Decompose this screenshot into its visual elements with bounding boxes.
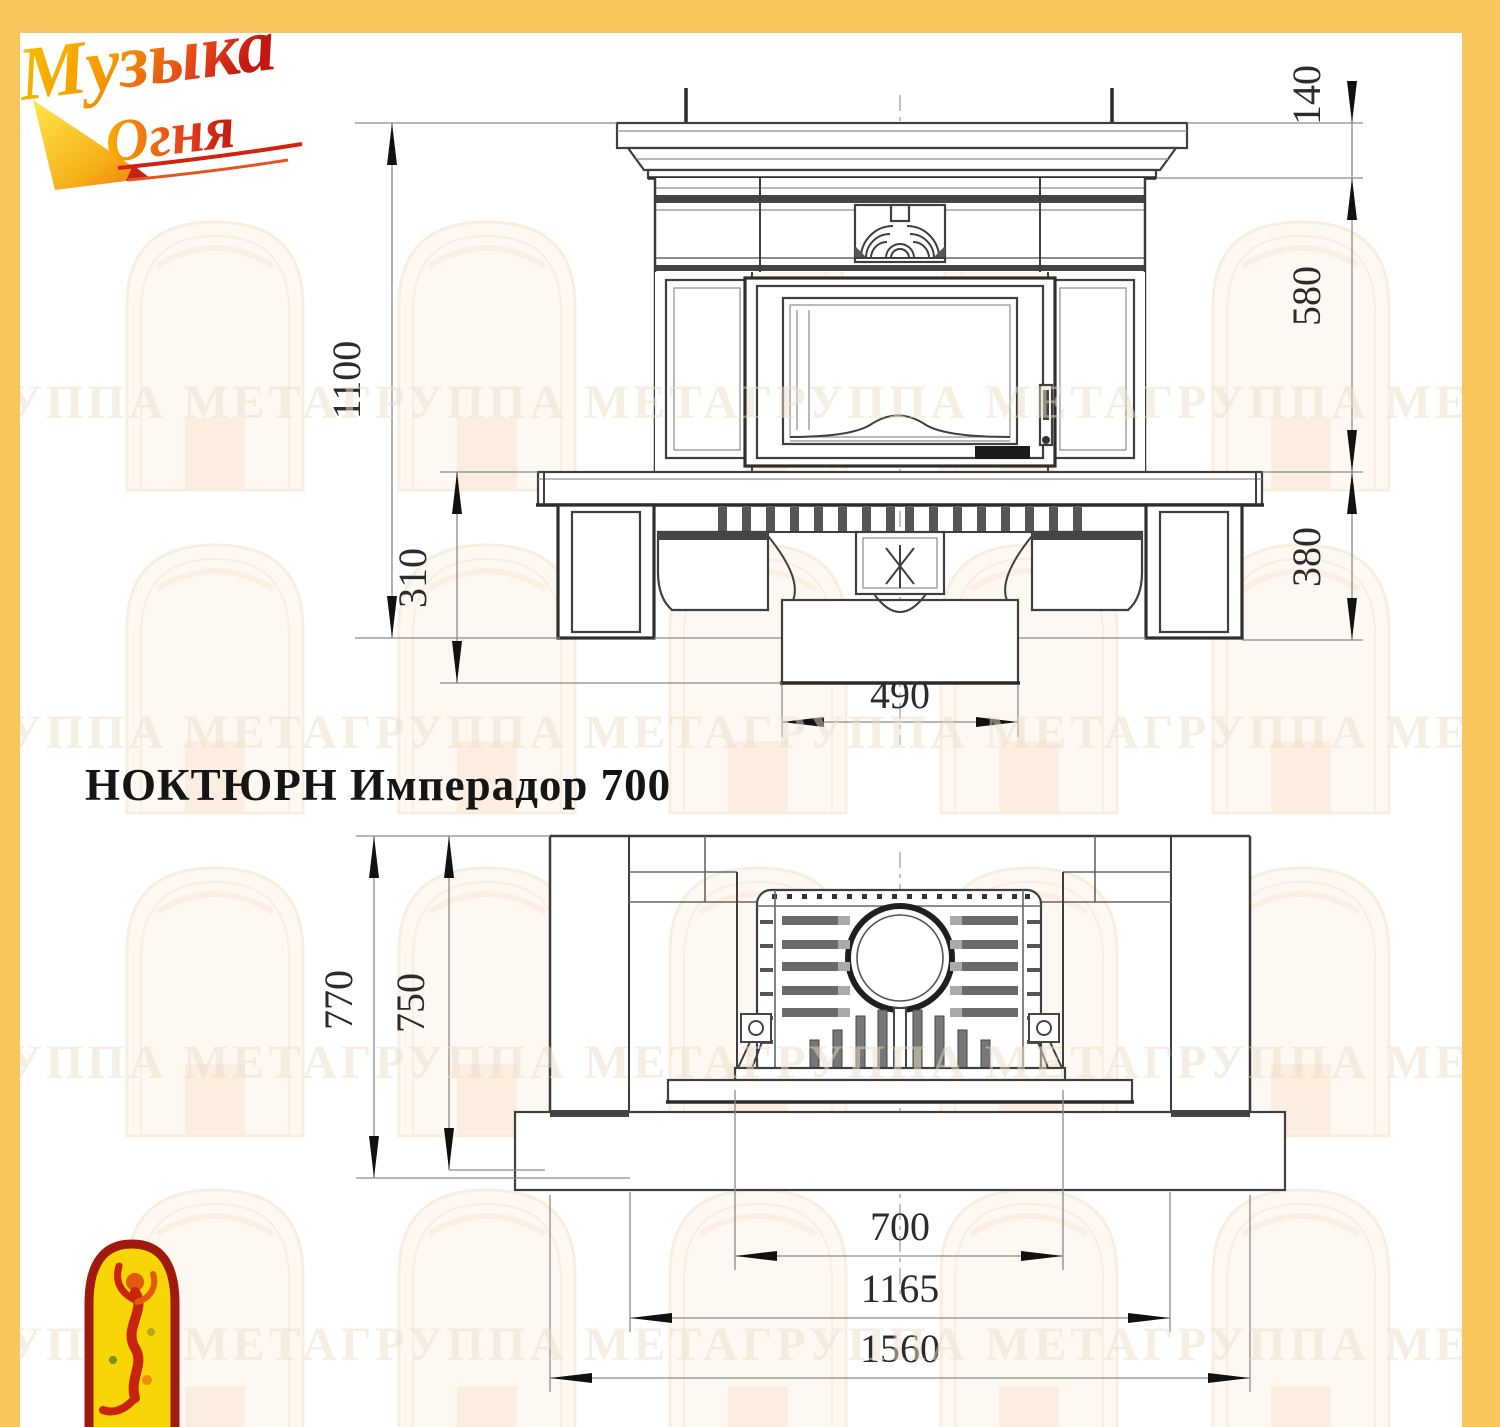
hearth-shelf [536, 472, 1264, 505]
watermark-arch [399, 1190, 575, 1427]
watermark-arch [1213, 222, 1389, 490]
watermark-arch [941, 1190, 1117, 1427]
dim-label-front-base-height: 380 [1284, 527, 1329, 587]
watermark-arch [127, 868, 303, 1136]
frieze-fan-ornament [855, 205, 945, 262]
watermark-text-row: ГРУППА МЕТАГРУППА МЕТАГРУППА МЕТАГРУППА … [0, 1036, 1500, 1089]
dim-label-front-plinth-height: 310 [390, 548, 435, 608]
dim-label-plan-firebox-width: 700 [870, 1204, 930, 1249]
flame-arch-icon [89, 1244, 175, 1427]
watermark-arch [1213, 1190, 1389, 1427]
dim-label-plan-inner-width: 1165 [861, 1266, 940, 1311]
dim-label-plan-inner-depth: 750 [388, 973, 433, 1033]
border-left [0, 0, 20, 1427]
page-title: НОКТЮРН Имперадор 700 [85, 760, 671, 810]
left-jamb-panel [655, 272, 752, 472]
watermark-arch [127, 222, 303, 490]
right-base-column [1146, 505, 1242, 638]
catalog-page: 1100 310 140 580 380 490 НОКТЮРН Имперад… [0, 0, 1500, 1427]
dim-label-front-middle-height: 580 [1284, 266, 1329, 326]
watermark-text-row: ГРУППА МЕТАГРУППА МЕТАГРУППА МЕТАГРУППА … [0, 376, 1500, 429]
watermark-text-row: ГРУППА МЕТАГРУППА МЕТАГРУППА МЕТАГРУППА … [0, 706, 1500, 759]
right-jamb-panel [1048, 272, 1145, 472]
vent-stub-lines [686, 88, 1112, 123]
dim-label-front-shelf-height: 140 [1284, 65, 1329, 125]
watermark-arch [399, 222, 575, 490]
watermark-arch [670, 1190, 846, 1427]
border-right [1462, 0, 1500, 1427]
flue-collar-circle [848, 906, 952, 1010]
left-base-column [558, 505, 654, 638]
music-of-fire-logo: Музыка Огня [13, 2, 302, 190]
front-bench-slab [515, 1112, 1285, 1190]
dim-label-plan-total-depth: 770 [316, 970, 361, 1030]
mantel-cornice [617, 123, 1187, 178]
door-sill-block [975, 446, 1030, 459]
firebox-door [745, 278, 1055, 466]
watermark-text-row: ГРУППА МЕТАГРУППА МЕТАГРУППА МЕТАГРУППА … [0, 1318, 1500, 1371]
